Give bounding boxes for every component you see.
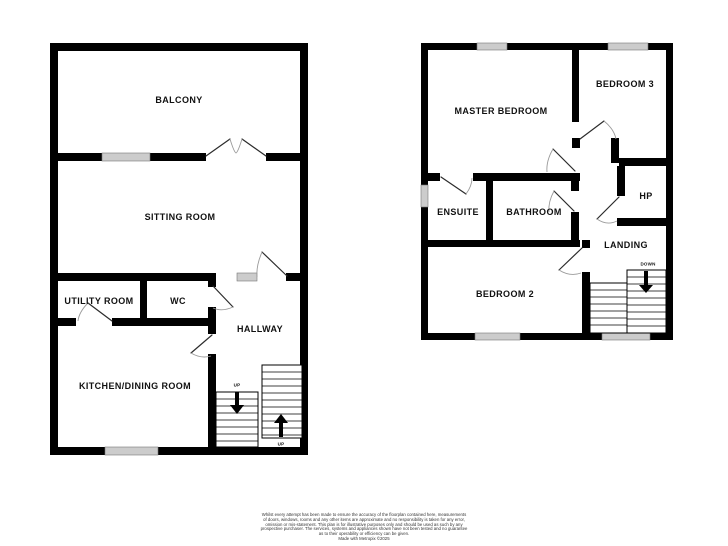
first-stairs bbox=[590, 270, 666, 333]
door-icon bbox=[206, 139, 230, 156]
room-label-bedroom-3: BEDROOM 3 bbox=[596, 79, 654, 89]
floorplan-page: BALCONY SITTING ROOM UTILITY ROOM WC HAL… bbox=[0, 0, 728, 546]
room-label-landing: LANDING bbox=[604, 240, 648, 250]
room-label-bedroom-2: BEDROOM 2 bbox=[476, 289, 534, 299]
window-icon bbox=[237, 273, 257, 281]
disclaimer-text: Whilst every attempt has been made to en… bbox=[199, 513, 529, 542]
first-doors bbox=[441, 121, 619, 274]
window-icon bbox=[477, 43, 507, 50]
room-label-hallway: HALLWAY bbox=[237, 324, 283, 334]
stair-direction-label-up: UP bbox=[278, 442, 285, 447]
door-icon bbox=[553, 149, 575, 171]
stair-direction-label-down: DOWN bbox=[640, 262, 655, 267]
room-label-bathroom: BATHROOM bbox=[506, 207, 562, 217]
disclaimer-credit: Made with Metropix ©2025 bbox=[199, 537, 529, 542]
window-icon bbox=[105, 447, 158, 455]
room-label-balcony: BALCONY bbox=[155, 95, 202, 105]
window-icon bbox=[602, 333, 650, 340]
window-icon bbox=[102, 153, 150, 161]
room-label-wc: WC bbox=[170, 296, 186, 306]
room-label-master-bedroom: MASTER BEDROOM bbox=[454, 106, 547, 116]
door-icon bbox=[441, 177, 466, 194]
door-icon bbox=[242, 139, 266, 156]
door-icon bbox=[213, 286, 233, 307]
door-icon bbox=[597, 197, 619, 219]
ground-stairs bbox=[216, 365, 302, 447]
window-icon bbox=[475, 333, 520, 340]
stair-direction-label-up: UP bbox=[234, 383, 241, 388]
window-icon bbox=[421, 185, 428, 207]
room-label-hp: HP bbox=[639, 191, 652, 201]
room-label-kitchen-dining-room: KITCHEN/DINING ROOM bbox=[79, 381, 191, 391]
room-label-sitting-room: SITTING ROOM bbox=[145, 212, 216, 222]
window-icon bbox=[608, 43, 648, 50]
door-icon bbox=[191, 335, 212, 353]
door-icon bbox=[559, 248, 582, 270]
room-label-ensuite: ENSUITE bbox=[437, 207, 479, 217]
room-label-utility-room: UTILITY ROOM bbox=[64, 296, 133, 306]
door-icon bbox=[262, 252, 287, 276]
door-icon bbox=[580, 121, 604, 139]
